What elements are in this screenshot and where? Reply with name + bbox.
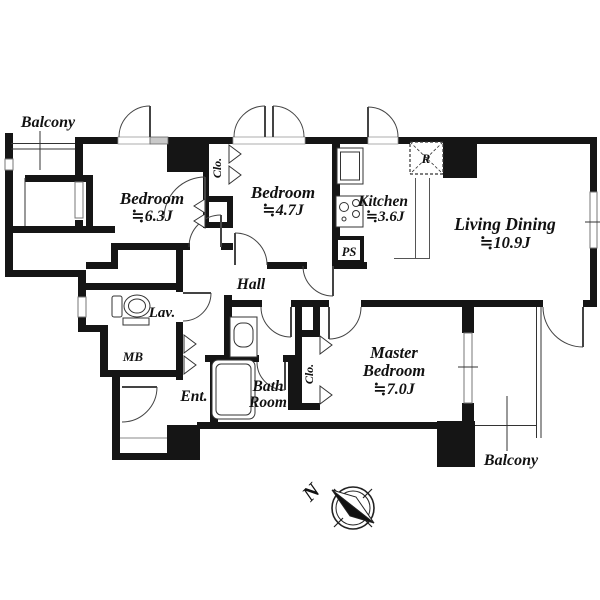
living-dining-name: Living Dining <box>453 214 556 234</box>
bedroom1-size: ≒6.3J <box>131 208 173 225</box>
closet-top-label: Clo. <box>210 158 224 178</box>
window-hatch <box>150 137 168 144</box>
kitchen-size: ≒3.6J <box>366 209 405 225</box>
kitchen-name: Kitchen <box>357 193 408 210</box>
toilet-icon <box>112 295 150 325</box>
pipe-shaft-label: PS <box>342 245 357 259</box>
bathroom-name-line2: Room <box>248 394 287 411</box>
hall-label: Hall <box>236 276 266 293</box>
closet-master-label: Clo. <box>302 364 316 384</box>
master-bedroom-name-line1: Master <box>369 343 418 362</box>
north-label: N <box>296 478 325 507</box>
entrance-label: Ent. <box>179 388 207 405</box>
floorplan-page: N Balcony Bedroom ≒6.3J Clo. Bedroom ≒4.… <box>0 0 600 600</box>
bedroom1-name: Bedroom <box>119 189 184 208</box>
kitchen-sink-icon <box>337 148 363 184</box>
bedroom2-size: ≒4.7J <box>262 202 304 219</box>
bathroom-name-line1: Bath <box>251 378 283 395</box>
windows <box>5 137 600 403</box>
lavatory-label: Lav. <box>148 305 176 321</box>
balcony-bottom-label: Balcony <box>483 452 539 469</box>
floorplan-drawing: N Balcony Bedroom ≒6.3J Clo. Bedroom ≒4.… <box>0 0 600 600</box>
bedroom2-name: Bedroom <box>250 183 315 202</box>
meter-box-label: MB <box>122 349 144 364</box>
master-bedroom-name-line2: Bedroom <box>362 361 426 380</box>
washbasin-icon <box>230 317 257 357</box>
refrigerator-label: R <box>421 151 431 166</box>
living-dining-size: ≒10.9J <box>480 233 532 252</box>
balcony-top-label: Balcony <box>20 114 76 131</box>
master-bedroom-size: ≒7.0J <box>373 381 415 398</box>
compass: N <box>296 478 374 529</box>
